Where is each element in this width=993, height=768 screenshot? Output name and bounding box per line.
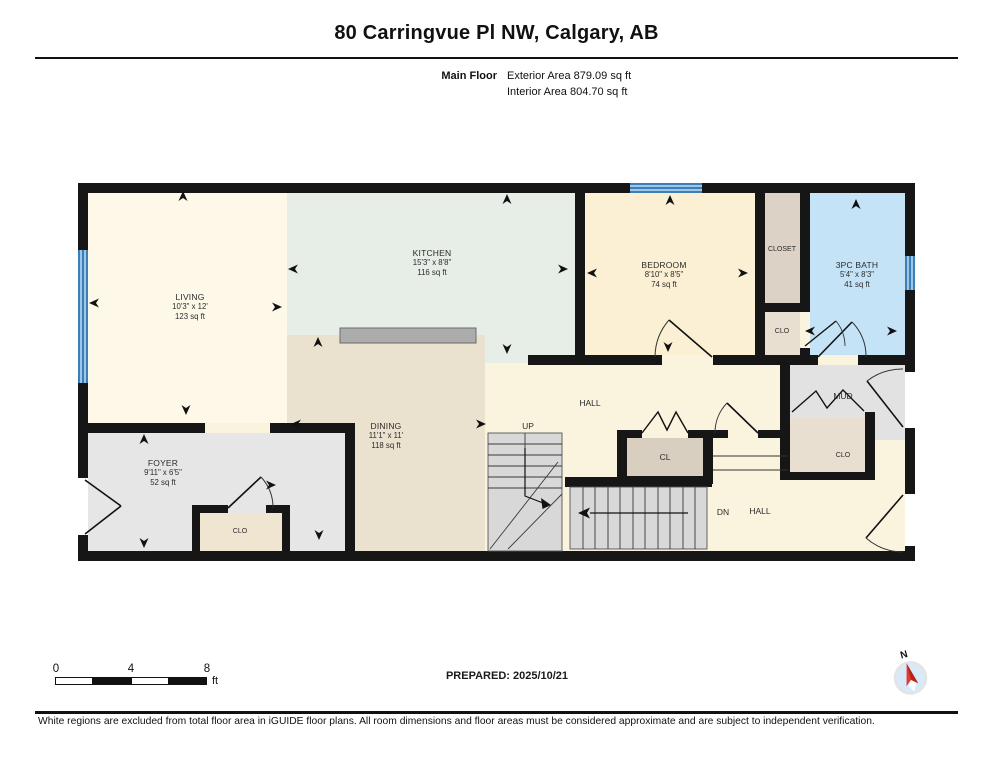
wall xyxy=(688,430,713,438)
wall xyxy=(800,183,810,305)
bath-label: 3PC BATH 5'4" x 8'3" 41 sq ft xyxy=(817,260,897,290)
living-room-label: LIVING 10'3" x 12' 123 sq ft xyxy=(140,292,240,322)
hall-lower-label: HALL xyxy=(740,506,780,516)
up-label: UP xyxy=(508,421,548,431)
mud-clo-label: CLO xyxy=(823,452,863,459)
floorplan-page: { "header": { "title": "80 Carringvue Pl… xyxy=(0,0,993,768)
prepared-date: PREPARED: 2025/10/21 xyxy=(387,670,627,682)
wall xyxy=(713,430,728,438)
hall-upper-label: HALL xyxy=(560,398,620,408)
dn-label: DN xyxy=(705,507,741,517)
wall xyxy=(565,477,712,487)
dining-label: DINING 11'1" x 11' 118 sq ft xyxy=(336,421,436,451)
compass-n-label: N xyxy=(899,649,909,661)
exterior-area: Exterior Area 879.09 sq ft xyxy=(507,68,631,84)
page-title: 80 Carringvue Pl NW, Calgary, AB xyxy=(0,22,993,45)
dining-area xyxy=(287,335,485,423)
window xyxy=(78,250,88,383)
bedroom-label: BEDROOM 8'10" x 8'5" 74 sq ft xyxy=(614,260,714,290)
wall xyxy=(575,183,585,365)
floor-label: Main Floor xyxy=(400,68,497,84)
wall xyxy=(78,535,88,561)
bedroom-clo-label: CLO xyxy=(762,328,802,335)
wall xyxy=(282,505,290,551)
wall xyxy=(617,430,642,438)
wall xyxy=(780,365,790,480)
mud-label: MUD xyxy=(823,391,863,401)
foyer-label: FOYER 9'11" x 6'5" 52 sq ft xyxy=(113,458,213,488)
wall xyxy=(78,183,88,250)
compass-icon: N xyxy=(888,644,936,702)
wall xyxy=(865,412,875,480)
title-divider xyxy=(35,57,958,59)
wall xyxy=(758,430,780,438)
foyer-clo-label: CLO xyxy=(220,528,260,535)
disclaimer-text: White regions are excluded from total fl… xyxy=(38,716,968,727)
window xyxy=(905,256,915,290)
scale-unit-label: ft xyxy=(212,675,218,687)
wall xyxy=(88,423,205,433)
floor-summary: Main Floor Exterior Area 879.09 sq ft In… xyxy=(400,68,631,100)
wall xyxy=(528,355,662,365)
mud-clo-area xyxy=(790,418,865,472)
wall xyxy=(192,505,228,513)
wall xyxy=(78,551,915,561)
wall xyxy=(78,183,915,193)
closet-label: CLOSET xyxy=(757,246,807,253)
scale-bar: 0 4 8 ft xyxy=(0,663,240,689)
wall xyxy=(905,183,915,256)
wall xyxy=(905,546,915,561)
footer-divider xyxy=(35,711,958,714)
wall xyxy=(755,355,818,365)
kitchen-label: KITCHEN 15'3" x 8'8" 116 sq ft xyxy=(382,248,482,278)
wall xyxy=(905,428,915,494)
interior-area: Interior Area 804.70 sq ft xyxy=(507,84,631,100)
window xyxy=(630,183,702,193)
wall xyxy=(780,472,875,480)
cl-label: CL xyxy=(645,452,685,462)
wall xyxy=(858,355,915,365)
wall xyxy=(78,383,88,478)
wall xyxy=(755,193,765,365)
